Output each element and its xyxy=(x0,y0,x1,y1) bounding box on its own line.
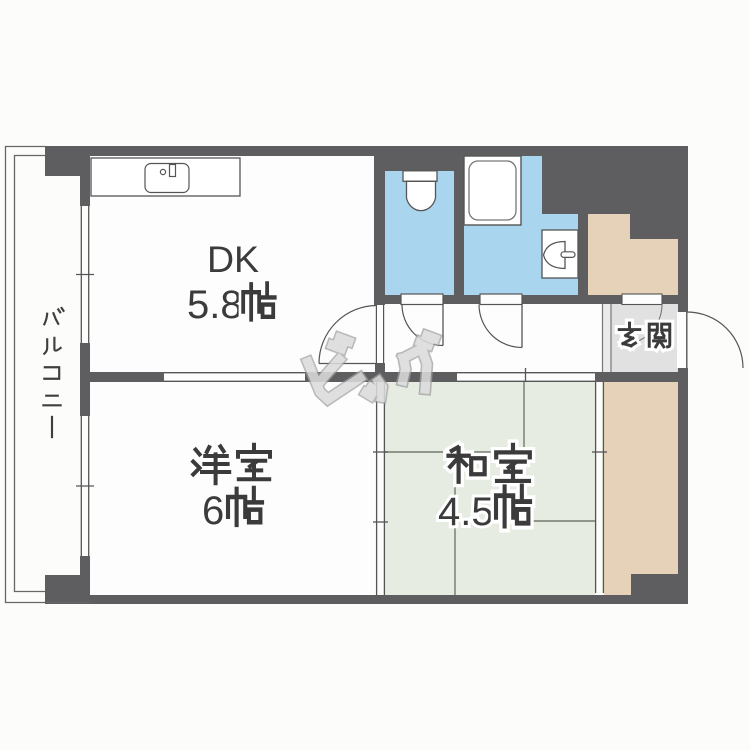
svg-text:6: 6 xyxy=(202,489,224,533)
svg-text:4.5: 4.5 xyxy=(438,490,494,534)
svg-text:DK: DK xyxy=(207,238,259,280)
svg-text:5.8: 5.8 xyxy=(187,283,243,327)
